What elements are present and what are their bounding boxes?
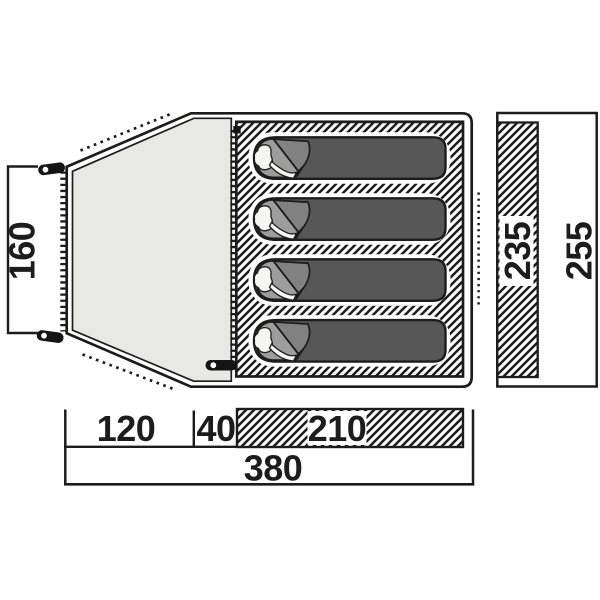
sleeping-bag [249,254,451,306]
sleeping-bag [249,315,451,367]
sleeping-bag [249,132,451,184]
zipper-slider-dot [233,126,240,133]
dim-label-120: 120 [97,408,156,449]
tent-peg-bottom-left [36,330,64,344]
dim-label-40: 40 [196,408,235,449]
dim-label-255: 255 [559,221,600,280]
dim-label-235: 235 [497,221,538,280]
dim-label-210: 210 [308,408,367,449]
sleeping-bag [249,193,451,245]
diagram-svg: 160 235 255 120 40 210 380 [0,0,600,600]
tent-peg-inner [206,360,238,371]
dim-label-160: 160 [2,222,43,281]
dim-rows: 120 40 210 380 [64,408,474,489]
dim-label-380: 380 [244,448,303,489]
tent-floorplan-diagram: 160 235 255 120 40 210 380 [0,0,600,600]
